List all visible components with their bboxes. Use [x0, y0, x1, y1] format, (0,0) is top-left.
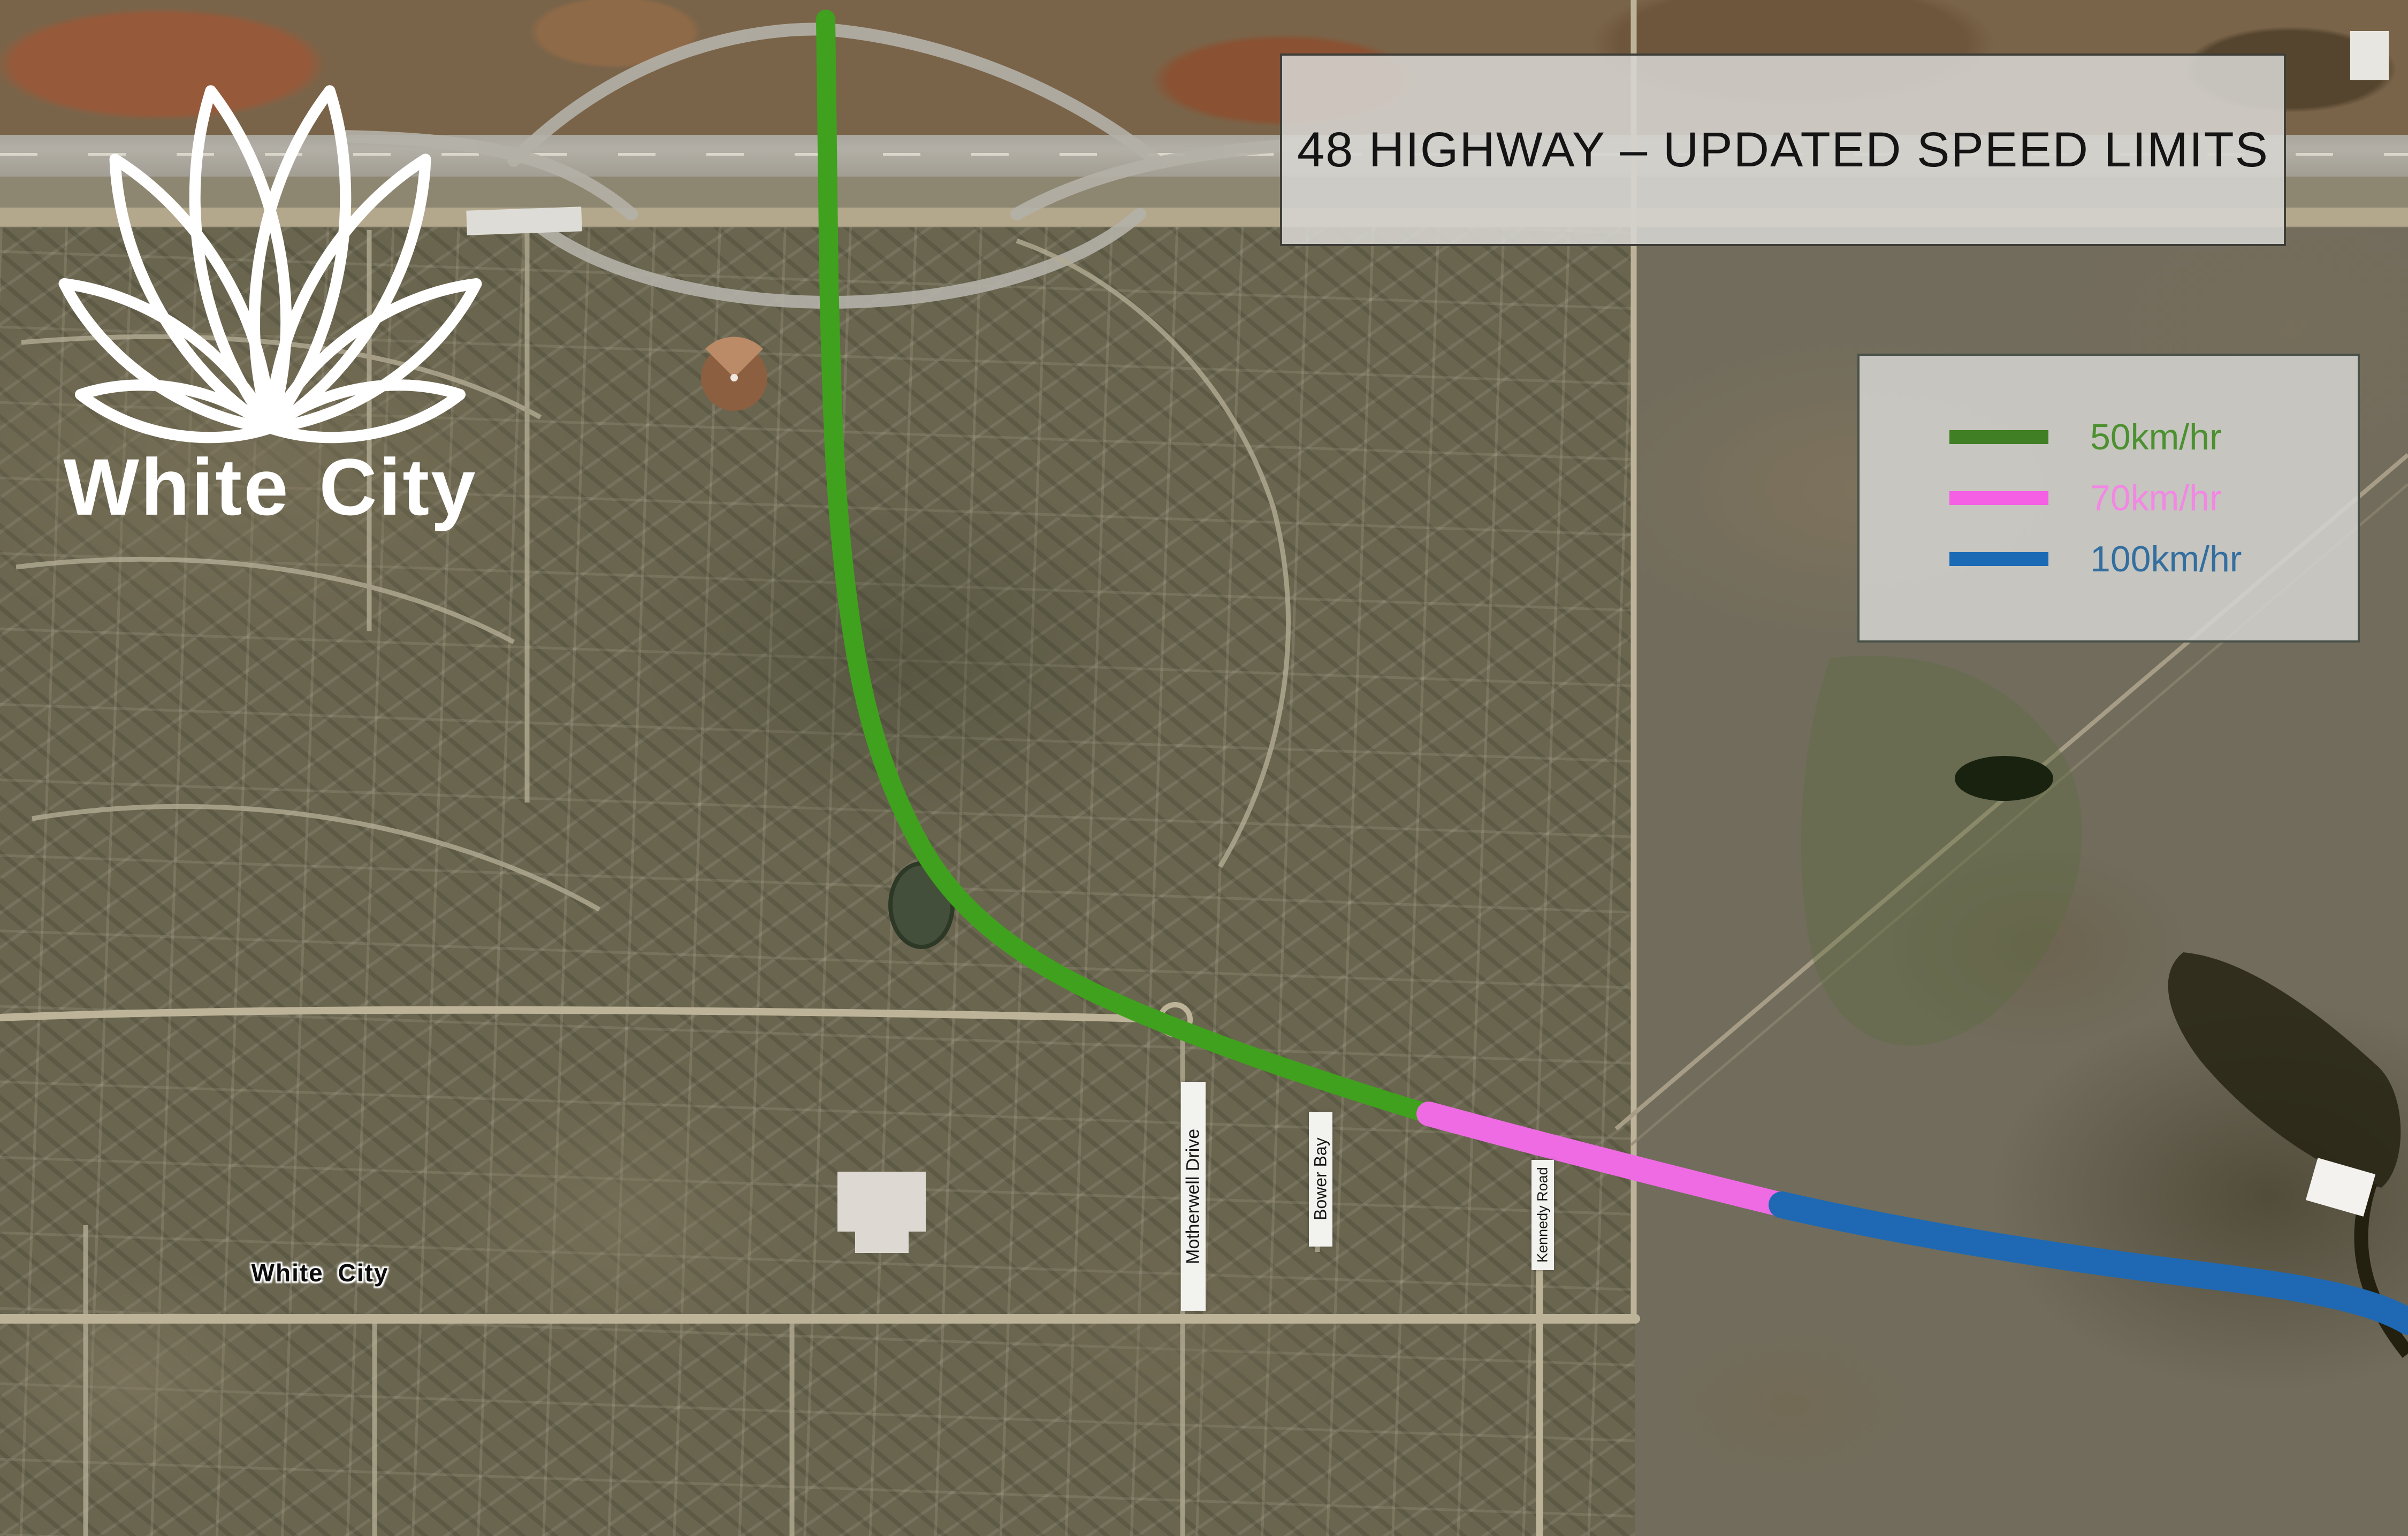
lotus-icon [45, 21, 495, 449]
legend-label-100: 100km/hr [2090, 541, 2242, 577]
title-banner: 48 HIGHWAY – UPDATED SPEED LIMITS [1280, 54, 2286, 246]
legend-label-50: 50km/hr [2090, 419, 2222, 455]
place-label-white-city: White City [234, 1258, 406, 1287]
logo-wordmark: White City [45, 447, 495, 527]
white-city-logo: White City [45, 21, 495, 527]
legend-swatch-70-icon [1949, 491, 2048, 505]
legend-row-70: 70km/hr [1949, 480, 2358, 516]
road-label-bower-bay: Bower Bay [1309, 1112, 1332, 1247]
legend-swatch-100-icon [1949, 552, 2048, 566]
legend-row-50: 50km/hr [1949, 419, 2358, 455]
legend: 50km/hr 70km/hr 100km/hr [1857, 354, 2360, 643]
legend-row-100: 100km/hr [1949, 541, 2358, 577]
legend-swatch-50-icon [1949, 430, 2048, 444]
road-label-kennedy-road: Kennedy Road [1531, 1160, 1554, 1270]
route-70kmh [1429, 1114, 1782, 1205]
road-label-motherwell-drive: Motherwell Drive [1181, 1082, 1206, 1311]
route-100kmh [1782, 1205, 2408, 1321]
legend-label-70: 70km/hr [2090, 480, 2222, 516]
map-poster: White City 48 HIGHWAY – UPDATED SPEED LI… [0, 0, 2408, 1536]
page-title: 48 HIGHWAY – UPDATED SPEED LIMITS [1297, 122, 2269, 178]
